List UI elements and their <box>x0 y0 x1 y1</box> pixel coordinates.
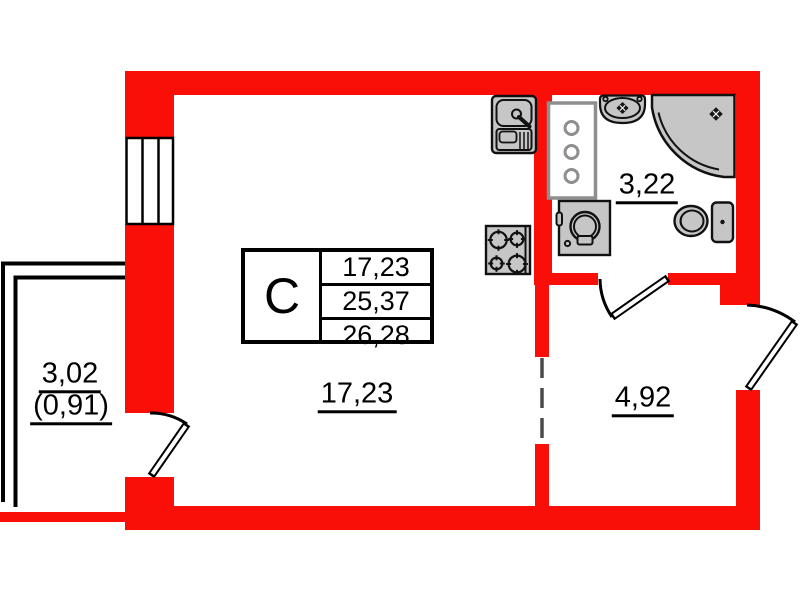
bathroom-door <box>600 278 668 317</box>
floor-plan: 17,23 3,22 4,92 3,02 (0,91) С 17,23 25,3… <box>0 0 800 600</box>
wall-bathroom-bottom-left <box>552 273 598 285</box>
window <box>127 138 174 224</box>
living-room-area-label: 17,23 <box>318 378 397 413</box>
window-frame <box>127 138 174 224</box>
hall-area-label: 4,92 <box>612 382 674 417</box>
bathroom-area-value: 3,22 <box>616 169 678 204</box>
wall-bottom <box>125 506 760 530</box>
balcony-sill <box>0 512 125 522</box>
wall-left-above-window <box>125 71 174 137</box>
living-room-area-value: 17,23 <box>318 378 397 413</box>
wall-hall-partition-upper <box>535 285 549 357</box>
unit-total-area-cell: 25,37 <box>322 286 430 320</box>
hall-area-value: 4,92 <box>612 382 674 417</box>
wall-bathroom-bottom-right <box>668 273 736 285</box>
balcony-reduced-area-label: (0,91) <box>30 390 112 425</box>
wall-left-middle <box>125 225 174 413</box>
balcony-reduced-area-value: (0,91) <box>30 390 112 425</box>
wall-left-below-door <box>125 477 174 530</box>
wall-top <box>125 71 760 95</box>
unit-info-table: С 17,23 25,37 26,28 <box>241 248 434 344</box>
wall-right-upper <box>736 71 760 305</box>
balcony-door-swing-arc <box>150 413 187 424</box>
balcony-door <box>150 413 187 476</box>
bathroom-door-swing-arc <box>600 279 612 317</box>
entrance-door-leaf-core <box>749 324 793 387</box>
stove-icon <box>486 226 530 275</box>
ventilation-shaft-icon <box>549 103 596 198</box>
entrance-door-swing-arc <box>747 305 795 322</box>
washing-machine-icon <box>557 201 611 255</box>
bathroom-area-label: 3,22 <box>616 169 678 204</box>
bathroom-door-leaf-core <box>614 279 666 315</box>
unit-areas-column: 17,23 25,37 26,28 <box>322 252 430 340</box>
unit-living-area-cell: 17,23 <box>322 252 430 286</box>
corner-shower-icon <box>652 95 735 177</box>
unit-total-area-with-balcony-cell: 26,28 <box>322 320 430 351</box>
burner-icon <box>509 256 526 273</box>
balcony-door-leaf-core <box>152 426 185 474</box>
toilet-icon <box>675 203 734 243</box>
kitchen-sink-icon <box>492 96 536 153</box>
wall-hall-partition-lower <box>535 444 549 506</box>
entrance-door <box>747 305 795 389</box>
unit-type-cell: С <box>245 252 322 340</box>
